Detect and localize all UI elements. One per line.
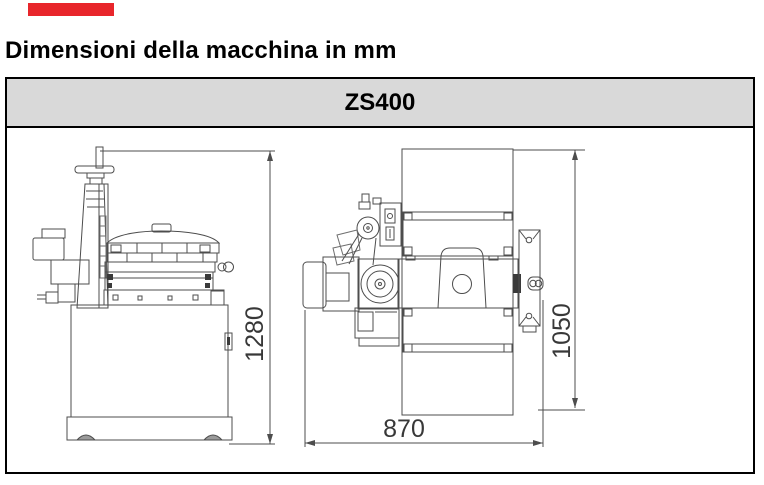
brand-logo-fragment bbox=[28, 3, 114, 16]
dimension-height: 1280 bbox=[100, 151, 275, 444]
dimension-width-label: 870 bbox=[383, 415, 425, 443]
dimension-height-label: 1280 bbox=[241, 306, 269, 362]
dimension-depth-label: 1050 bbox=[548, 303, 576, 359]
dimension-width: 870 bbox=[305, 300, 543, 447]
dimension-depth: 1050 bbox=[513, 150, 585, 410]
spec-table-header: ZS400 bbox=[5, 77, 755, 128]
side-view bbox=[33, 147, 234, 440]
model-name: ZS400 bbox=[345, 89, 416, 117]
page-title: Dimensioni della macchina in mm bbox=[5, 39, 397, 63]
manual-page: Dimensioni della macchina in mm ZS400 bbox=[0, 0, 764, 485]
machine-dimension-diagram: 1280 bbox=[7, 128, 753, 472]
top-view bbox=[303, 149, 543, 415]
